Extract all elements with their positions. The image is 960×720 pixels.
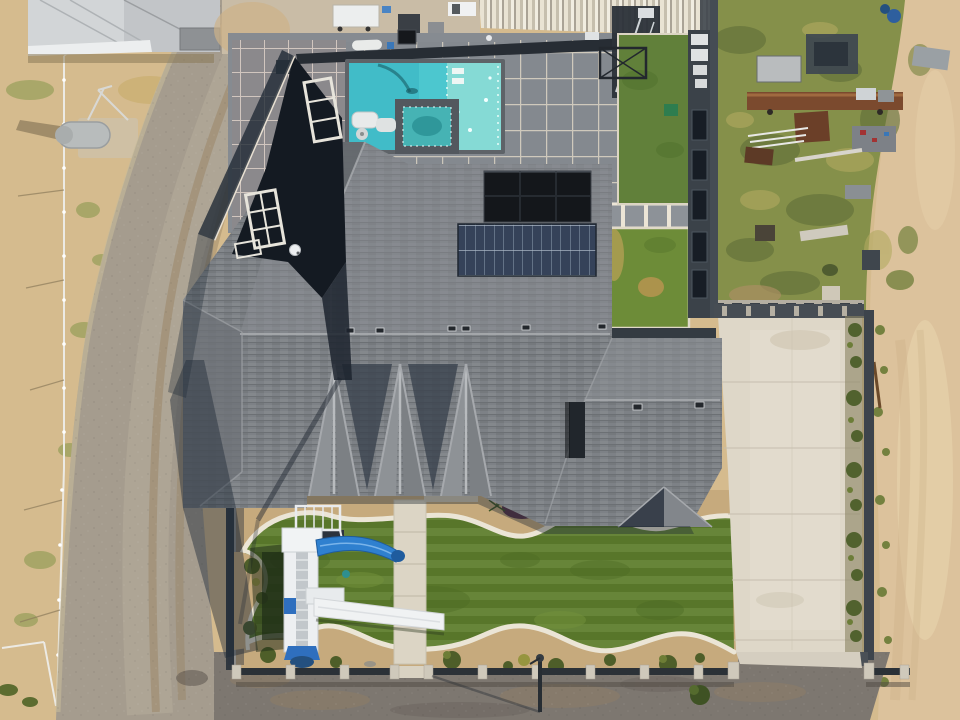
junk-item (755, 225, 775, 241)
wall-equipment (352, 39, 382, 50)
junk-item (862, 250, 880, 270)
chimney (569, 402, 585, 458)
blue-panel (284, 598, 296, 614)
junk-item (845, 185, 871, 199)
swimming-pool (345, 59, 505, 154)
blue-item (382, 6, 391, 13)
green-box (664, 104, 678, 116)
junk-item (878, 90, 894, 102)
solar-array-dark (484, 171, 591, 222)
spa (395, 99, 459, 154)
east-fence (864, 310, 874, 660)
junk-bush (822, 264, 838, 276)
side-fence (710, 0, 718, 318)
junk-item (856, 88, 876, 100)
rusty-truck (794, 111, 830, 143)
white-trailer (333, 5, 379, 27)
windows (692, 110, 707, 298)
blue-barrel (880, 4, 890, 14)
north-lawns (600, 0, 718, 340)
east-wall (688, 30, 712, 318)
aerial-photo (0, 0, 960, 720)
lounger (452, 68, 464, 74)
dry-spot (638, 277, 664, 297)
junk-item (744, 147, 774, 166)
junk-item (757, 56, 801, 82)
junk-item (814, 42, 848, 66)
aerial-photo-canvas (0, 0, 960, 720)
driveway (714, 304, 874, 668)
wall-equipment (398, 30, 416, 44)
barn-annex (180, 28, 220, 50)
equipment (428, 22, 444, 34)
solar-array-grid (458, 224, 596, 276)
concrete-pad (822, 286, 840, 300)
barn-shadow (28, 54, 214, 63)
wall-equipment (387, 42, 394, 49)
lounger (452, 78, 464, 84)
driveway-top-wall (714, 304, 864, 318)
